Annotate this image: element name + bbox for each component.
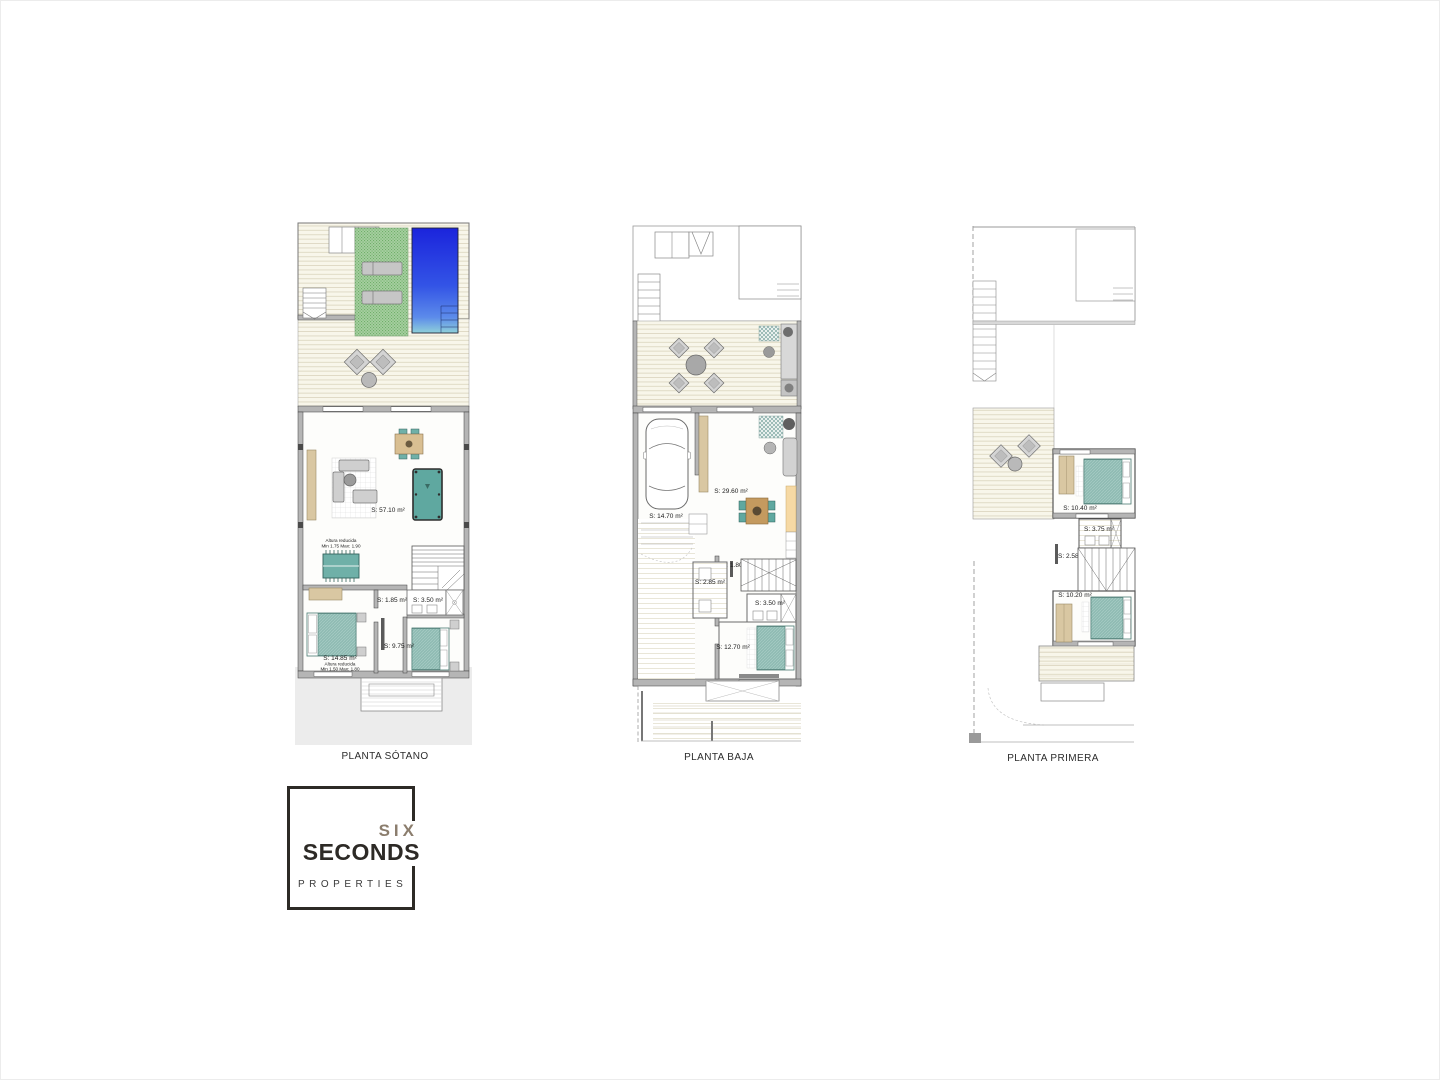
basement-stairs: [412, 546, 464, 590]
roof-terrace: [973, 408, 1054, 519]
label-area-bedroom: S: 12.70 m²: [716, 644, 750, 651]
fence-post: [711, 721, 713, 741]
label-area-laundry: S: 2.85 m²: [695, 579, 726, 586]
laundry-room: S: 2.85 m²: [693, 562, 727, 618]
car: [644, 419, 691, 509]
floor-plan-baja: S: 14.70 m² S: 29.60 m²: [629, 224, 809, 749]
window: [412, 672, 449, 677]
label-area-main-room: S: 57.10 m²: [371, 507, 405, 514]
wardrobe: [739, 674, 779, 678]
label-altura-1: Altura reducida: [326, 538, 357, 543]
exterior-stairs: [973, 281, 996, 381]
nightstand: [357, 613, 366, 622]
bed: [1084, 459, 1131, 504]
window: [391, 407, 431, 411]
label-altura-2: Min 1.75 Max: 1.90: [321, 544, 361, 549]
door-leaf: [1055, 544, 1058, 564]
caption-planta-sotano: PLANTA SÓTANO: [295, 751, 475, 762]
logo-properties-text: PROPERTIES: [298, 879, 407, 890]
pool-table: [413, 469, 442, 520]
nightstand: [357, 647, 366, 656]
rear-yard: [638, 681, 801, 743]
label-area-bath: S: 3.75 m²: [1084, 526, 1115, 533]
upper-void: [973, 226, 1135, 408]
sun-lounger: [362, 262, 402, 275]
label-area-bath: S: 3.50 m²: [413, 597, 444, 604]
logo-six-text: SIX: [377, 821, 420, 841]
window: [717, 407, 753, 412]
sliding-door: [699, 416, 708, 492]
bed: [412, 628, 449, 670]
stairs: [741, 559, 796, 591]
bedroom-bottom: S: 10.20 m²: [1053, 591, 1135, 646]
pool: [412, 228, 458, 333]
window: [323, 407, 363, 411]
foosball-table: [323, 550, 359, 582]
bathroom: S: 3.50 m²: [747, 594, 796, 622]
logo-seconds-text: SECONDS: [301, 839, 422, 866]
nightstand: [450, 662, 459, 671]
label-area-living: S: 29.60 m²: [714, 488, 748, 495]
floor-plan-sotano: S: 57.10 m² Altura reducida Min 1.75 Max…: [295, 222, 475, 747]
kitchen-counter: [786, 486, 796, 532]
balcony: [1039, 646, 1134, 701]
caption-planta-baja: PLANTA BAJA: [629, 752, 809, 763]
window: [1060, 450, 1090, 454]
window: [1076, 514, 1108, 518]
label-area-hall: S: 1.85 m²: [377, 597, 408, 604]
courtyard: [361, 678, 442, 711]
exterior-stairs: [303, 288, 326, 319]
label-area-bath: S: 3.50 m²: [755, 600, 786, 607]
planter: [1041, 683, 1104, 701]
desk: [309, 588, 342, 600]
bed: [757, 626, 794, 670]
terrace-table: [686, 355, 706, 375]
bedroom-top: S: 10.40 m²: [1053, 449, 1135, 518]
entrance-canopy: [739, 226, 801, 299]
rug: [1082, 602, 1089, 632]
label-area-bedroom-top: S: 10.40 m²: [1063, 505, 1097, 512]
window: [1078, 642, 1113, 646]
label-area-bedroom-right: S: 9.75 m²: [384, 643, 415, 650]
sun-lounger: [362, 291, 402, 304]
wall-stub: [969, 733, 981, 743]
terrace-table: [1008, 457, 1022, 471]
bathroom: S: 3.75 m²: [1079, 519, 1121, 548]
nightstand: [450, 620, 459, 629]
label-altura-4: Min 1.50 Max: 1.80: [320, 667, 360, 672]
solarium: [298, 223, 469, 407]
bed: [307, 613, 356, 656]
bed: [1091, 597, 1131, 639]
fence-post: [641, 691, 643, 741]
sofa: [783, 438, 797, 476]
logo-six-seconds-properties: SIX SECONDS PROPERTIES: [287, 786, 415, 910]
label-area-bedroom-bottom: S: 10.20 m²: [1058, 592, 1092, 599]
grass-area: [355, 228, 408, 336]
outdoor-shower: [689, 232, 713, 256]
sideboard: [307, 450, 316, 520]
terrace-table: [362, 373, 377, 388]
stairs: [1078, 548, 1135, 591]
shower: [446, 590, 463, 615]
terrace: [633, 321, 801, 409]
rug: [1076, 466, 1083, 496]
window: [643, 407, 691, 412]
caption-planta-primera: PLANTA PRIMERA: [963, 753, 1143, 764]
label-area-garage: S: 14.70 m²: [649, 513, 683, 520]
window: [314, 672, 352, 677]
bedroom: S: 12.70 m²: [716, 622, 796, 679]
floor-plan-primera: S: 10.40 m² S: 3.75 m² S: 2.58 m²: [963, 226, 1143, 751]
garage: S: 14.70 m²: [644, 419, 691, 520]
page: S: 57.10 m² Altura reducida Min 1.75 Max…: [0, 0, 1440, 1080]
